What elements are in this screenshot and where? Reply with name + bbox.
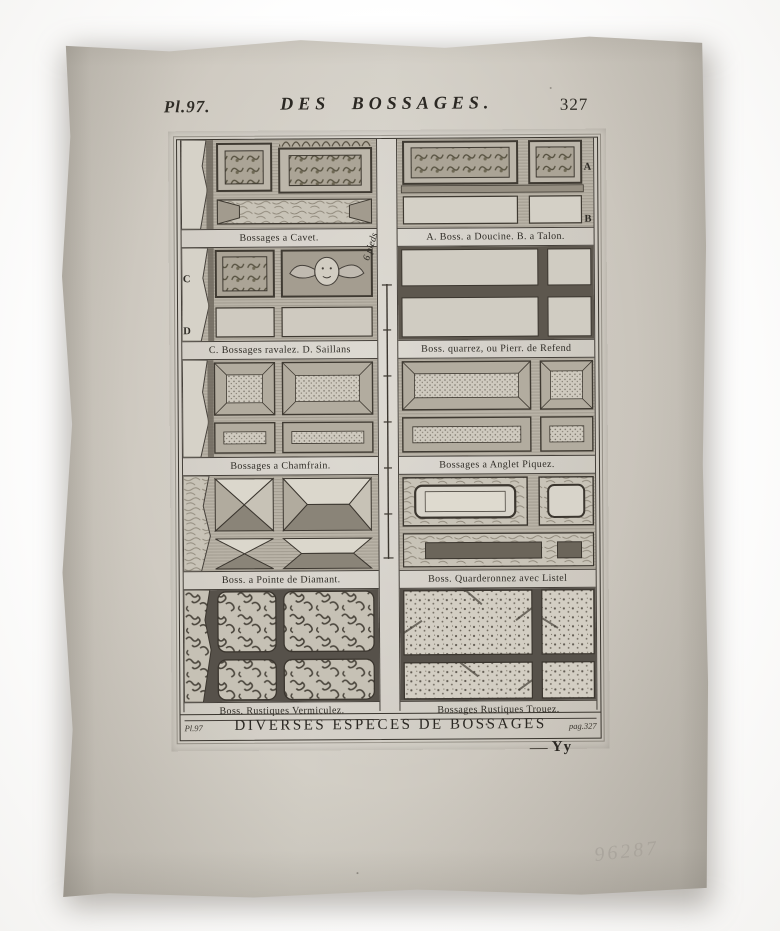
figure-caption: A. Boss. a Doucine. B. a Talon. [398,227,594,247]
paper-sheet: Pl.97. DES BOSSAGES. 327 [51,28,712,904]
engraving-bossages-cavet [181,139,377,229]
engraving-bossages-chamfrain [182,359,378,457]
page-title: DES BOSSAGES. [176,92,598,116]
engraving-quarderonnez-listel [399,474,596,570]
paper-speck [486,723,488,725]
letter-label-d: D [183,326,191,337]
engraving-quarrez-pierre-de-refend [398,246,595,340]
scale-bar [381,284,395,559]
engraving-doucine-talon: A B [397,138,594,228]
figure-column-right: A B A. Boss. a Doucine. B. a Talon. Boss… [396,138,597,711]
footer-plate-ref: Pl.97 [185,723,203,733]
paper-speck [550,87,552,89]
letter-label-c: C [183,274,191,285]
figure-caption: Bossages a Anglet Piquez. [399,455,595,475]
footer-page-ref: pag.327 [569,721,597,731]
page-number: 327 [560,95,589,115]
figure-column-left: Bossages a Cavet. [180,139,380,712]
figure-caption: Boss. quarrez, ou Pierr. de Refend [398,339,594,359]
figure-caption: Boss. a Pointe de Diamant. [184,570,379,590]
inventory-number-handwritten: 96287 [593,837,660,867]
engraving-rustiques-trouez [400,588,597,701]
paper-speck [356,872,358,874]
footer-title: DIVERSES ESPECES DE BOSSAGES [181,713,601,739]
letter-label-a: A [584,162,592,173]
figure-caption: Bossages a Cavet. [182,228,377,248]
signature-mark: Yy [552,739,572,756]
signature-dash [530,748,548,749]
photo-background: Pl.97. DES BOSSAGES. 327 [0,0,780,931]
plate-frame: Bossages a Cavet. [176,137,602,742]
engraving-pointe-de-diamant [183,475,379,571]
footer-title-band: Pl.97 DIVERSES ESPECES DE BOSSAGES pag.3… [181,712,601,740]
engraving-anglet-piquez [398,358,595,456]
figure-caption: Bossages a Chamfrain. [183,456,378,476]
engraving-rustiques-vermiculez [184,589,380,702]
engraving-bossages-ravalez-saillans: C D [182,247,378,341]
figure-caption: C. Bossages ravalez. D. Saillans [182,340,377,360]
letter-label-b: B [584,214,591,225]
figure-caption: Boss. Quarderonnez avec Listel [400,569,596,589]
